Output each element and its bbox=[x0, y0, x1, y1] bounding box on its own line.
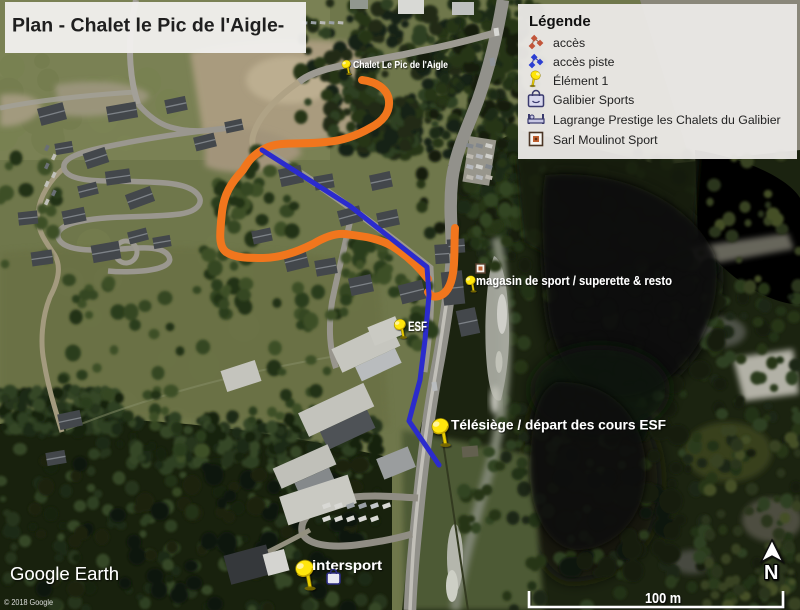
svg-text:Télésiège / départ des cours E: Télésiège / départ des cours ESF bbox=[451, 418, 666, 433]
svg-text:Chalet Le Pic de l'Aigle: Chalet Le Pic de l'Aigle bbox=[353, 60, 448, 71]
svg-text:N: N bbox=[764, 562, 778, 584]
svg-text:100 m: 100 m bbox=[645, 590, 681, 607]
svg-text:magasin de sport / superette &: magasin de sport / superette & resto bbox=[476, 274, 672, 288]
svg-text:Lagrange Prestige les Chalets: Lagrange Prestige les Chalets du Galibie… bbox=[553, 113, 781, 127]
svg-text:Légende: Légende bbox=[529, 13, 591, 30]
svg-text:intersport: intersport bbox=[312, 557, 382, 573]
svg-text:Sarl Moulinot Sport: Sarl Moulinot Sport bbox=[553, 133, 658, 147]
svg-text:Élément 1: Élément 1 bbox=[553, 73, 609, 88]
svg-text:Galibier Sports: Galibier Sports bbox=[553, 93, 634, 107]
svg-text:Plan - Chalet le Pic de l'Aigl: Plan - Chalet le Pic de l'Aigle- bbox=[12, 15, 284, 37]
svg-text:© 2018 Google: © 2018 Google bbox=[4, 598, 53, 607]
svg-text:accès: accès bbox=[553, 36, 585, 50]
svg-text:accès piste: accès piste bbox=[553, 55, 615, 69]
svg-text:Google Earth: Google Earth bbox=[10, 563, 119, 584]
svg-text:ESF: ESF bbox=[408, 318, 427, 334]
